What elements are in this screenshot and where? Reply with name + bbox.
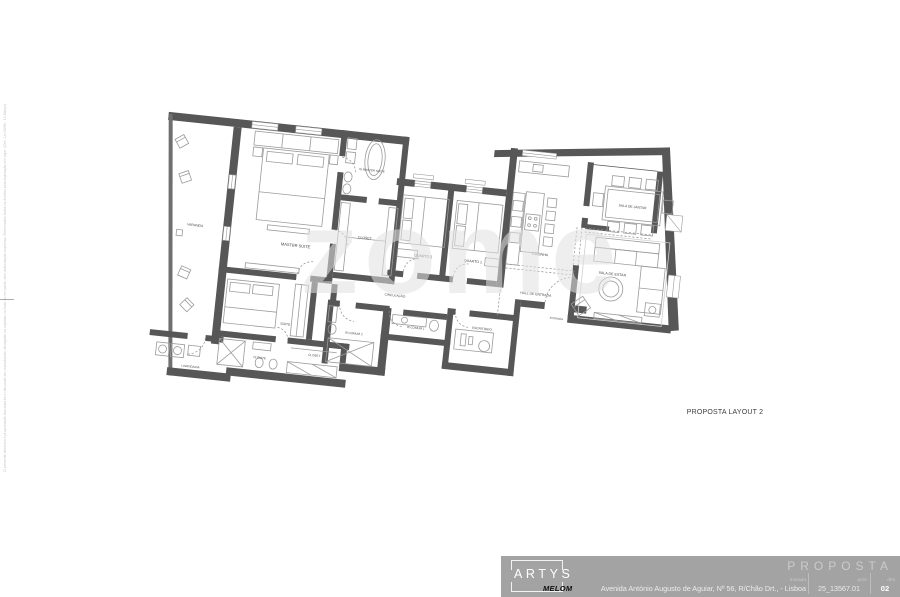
- room-label-cozinha: COZINHA: [532, 252, 549, 258]
- kitchen-island: [520, 192, 544, 254]
- brand-name: ARTYS: [514, 567, 573, 581]
- room-label-sala-jantar: SALA DE JANTAR: [618, 203, 647, 210]
- desk-chair: [478, 340, 490, 352]
- room-label-hall-entrada: HALL DE ENTRADA: [520, 291, 552, 298]
- room-label-lavandaria: LAVANDARIA: [181, 364, 200, 370]
- field-label-morada: morada: [651, 578, 806, 583]
- room-label-is-comum-1: IS COMUM 1: [407, 325, 425, 331]
- room-label-circulacao: CIRCULAÇÃO: [384, 291, 406, 298]
- room-label-suite: SUITE: [280, 322, 291, 327]
- suite-furniture: [223, 277, 309, 337]
- laundry-fixtures: [155, 342, 200, 360]
- bedroom1-furniture: [451, 200, 505, 267]
- room-label-quarto-1: QUARTO 1: [464, 259, 483, 265]
- office-furniture: [454, 329, 494, 353]
- rug: [578, 234, 670, 326]
- field-label-proc: proc: [810, 578, 867, 583]
- doc-type: PROPOSTA: [787, 559, 893, 573]
- field-value-proc: 25_13567.01: [810, 584, 868, 593]
- field-value-address: Avenida António Augusto de Aguiar, Nº 56…: [561, 584, 806, 593]
- bed: [452, 200, 503, 253]
- room-label-is-master: IS MASTER SUITE: [359, 167, 385, 174]
- coffee-table: [598, 276, 624, 302]
- bed: [398, 195, 449, 248]
- sheet: VARANDA MASTER SUITE IS MASTER SUITE CLO…: [0, 0, 900, 597]
- title-block: ARTYS MELOM PROPOSTA morada Avenida Antó…: [501, 556, 900, 597]
- room-label-master-suite: MASTER SUITE: [281, 241, 311, 249]
- bedroom2-furniture: [397, 195, 449, 261]
- master-bedroom-furniture: [241, 131, 340, 276]
- side-disclaimer: O presente desenho é propriedade dos aut…: [3, 162, 7, 472]
- room-label-closet-suite: CLOSET: [308, 353, 321, 358]
- field-divider: [808, 573, 809, 594]
- floor-plan-svg: VARANDA MASTER SUITE IS MASTER SUITE CLO…: [0, 0, 900, 597]
- floor-plan: VARANDA MASTER SUITE IS MASTER SUITE CLO…: [142, 95, 698, 428]
- desk: [454, 329, 494, 353]
- field-divider: [870, 573, 871, 594]
- suite-bath-fixtures: [217, 338, 279, 370]
- drawing-title: PROPOSTA LAYOUT 2: [652, 409, 798, 416]
- room-label-entrada: ENTRADA: [550, 316, 564, 321]
- room-label-closet-master: CLOSET: [358, 235, 372, 240]
- field-label-des: des: [872, 578, 895, 583]
- room-label-is-suite: IS SUITE: [253, 355, 266, 360]
- margin-tick: [0, 299, 14, 300]
- room-label-sala-estar: SALA DE ESTAR: [598, 271, 626, 278]
- bathtub: [363, 139, 387, 181]
- sofa: [595, 237, 660, 254]
- room-label-varanda: VARANDA: [187, 222, 204, 228]
- field-value-des: 02: [872, 584, 898, 593]
- room-label-is-comum-2: IS COMUM 2: [345, 330, 363, 336]
